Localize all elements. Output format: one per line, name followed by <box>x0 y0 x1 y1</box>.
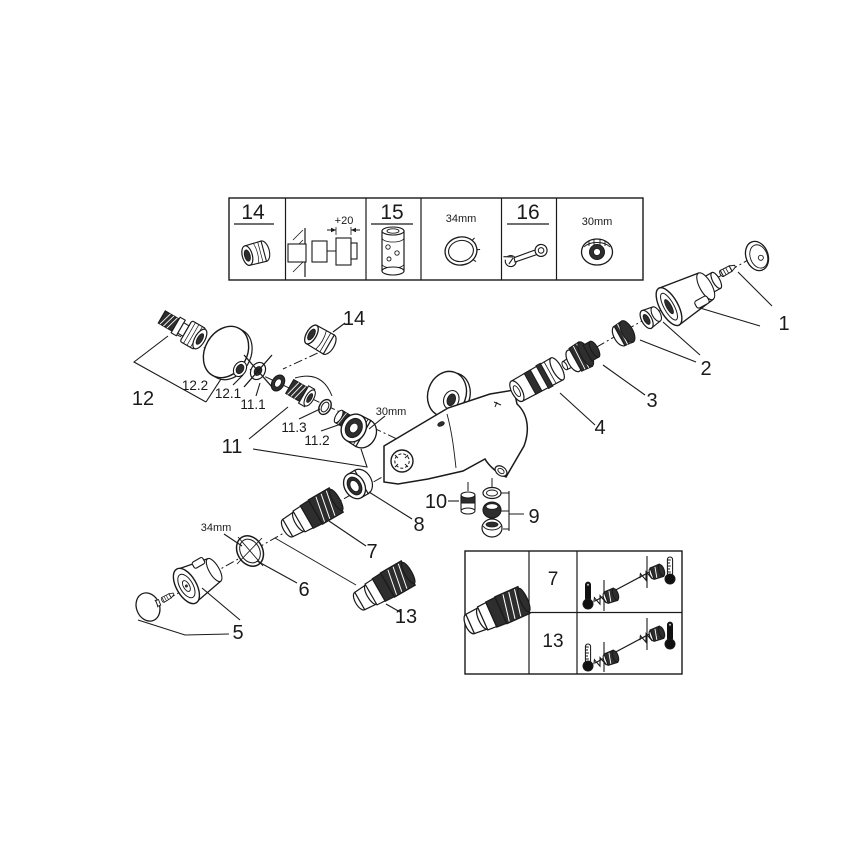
callout-3: 3 <box>646 390 657 412</box>
part-14-cap-nut <box>302 322 339 356</box>
callout-8: 8 <box>413 514 424 536</box>
washer <box>269 373 288 394</box>
part-4-thermo-element <box>506 355 567 405</box>
handle-screw <box>719 263 737 277</box>
callout-5: 5 <box>232 622 243 644</box>
callout-12-2: 12.2 <box>182 378 208 393</box>
callout-14: 14 <box>343 308 365 330</box>
part-11-1-crossed-washer <box>244 355 272 387</box>
callout-1: 1 <box>778 313 789 335</box>
part-5-cap <box>132 589 165 625</box>
top-parts-box: 14 +20 15 <box>229 198 643 280</box>
part-12-2-s-union <box>156 307 210 352</box>
diagram-svg: 1 2 3 4 5 6 7 8 9 10 11 12 13 14 11.1 11… <box>0 0 868 868</box>
o-ring <box>316 397 334 416</box>
installation-box: 7 13 <box>460 551 682 674</box>
extension-sleeve-icon <box>382 227 404 275</box>
callout-11: 11 <box>222 436 243 458</box>
callout-7: 7 <box>366 541 377 563</box>
top-box-dim-30mm: 30mm <box>582 216 613 228</box>
callout-11-1: 11.1 <box>240 397 265 412</box>
callout-9: 9 <box>528 506 539 528</box>
exploded-parts-diagram: 1 2 3 4 5 6 7 8 9 10 11 12 13 14 11.1 11… <box>0 0 868 868</box>
union-nut-icon <box>582 239 613 265</box>
top-box-dim-plus20: +20 <box>335 215 354 227</box>
part-2-ring-a <box>609 318 638 349</box>
callout-11-3: 11.3 <box>281 420 306 435</box>
part-1-handle-knob <box>651 260 730 329</box>
top-box-number-15: 15 <box>380 201 403 224</box>
callout-13: 13 <box>395 606 417 628</box>
part-8-adapter-ring <box>339 465 377 502</box>
part-6-ring-34mm <box>231 531 269 571</box>
installation-row-13-number: 13 <box>542 631 563 652</box>
dim-label-34mm: 34mm <box>201 522 232 534</box>
faucet-body <box>384 366 527 484</box>
part-10-flow-restrictor <box>461 492 475 514</box>
dim-label-30mm: 30mm <box>376 406 407 418</box>
top-box-number-14: 14 <box>241 201 265 224</box>
part-7-check-valve-cartridge <box>277 486 346 542</box>
top-box-dim-34mm: 34mm <box>446 213 477 225</box>
part-11-3-nipple <box>285 378 318 409</box>
part-9-aerator-stack <box>482 488 502 538</box>
callout-4: 4 <box>594 417 605 439</box>
callout-10: 10 <box>425 491 447 513</box>
top-box-number-16: 16 <box>516 201 539 224</box>
callout-12: 12 <box>132 388 154 410</box>
callout-2: 2 <box>700 358 711 380</box>
part-1-cap <box>742 238 773 274</box>
knob-screw <box>161 591 175 602</box>
callout-11-2: 11.2 <box>304 433 329 448</box>
part-5-handle-knob <box>168 551 228 608</box>
installation-row-7-number: 7 <box>548 569 559 590</box>
callout-12-1: 12.1 <box>215 386 241 401</box>
callout-6: 6 <box>298 579 309 601</box>
